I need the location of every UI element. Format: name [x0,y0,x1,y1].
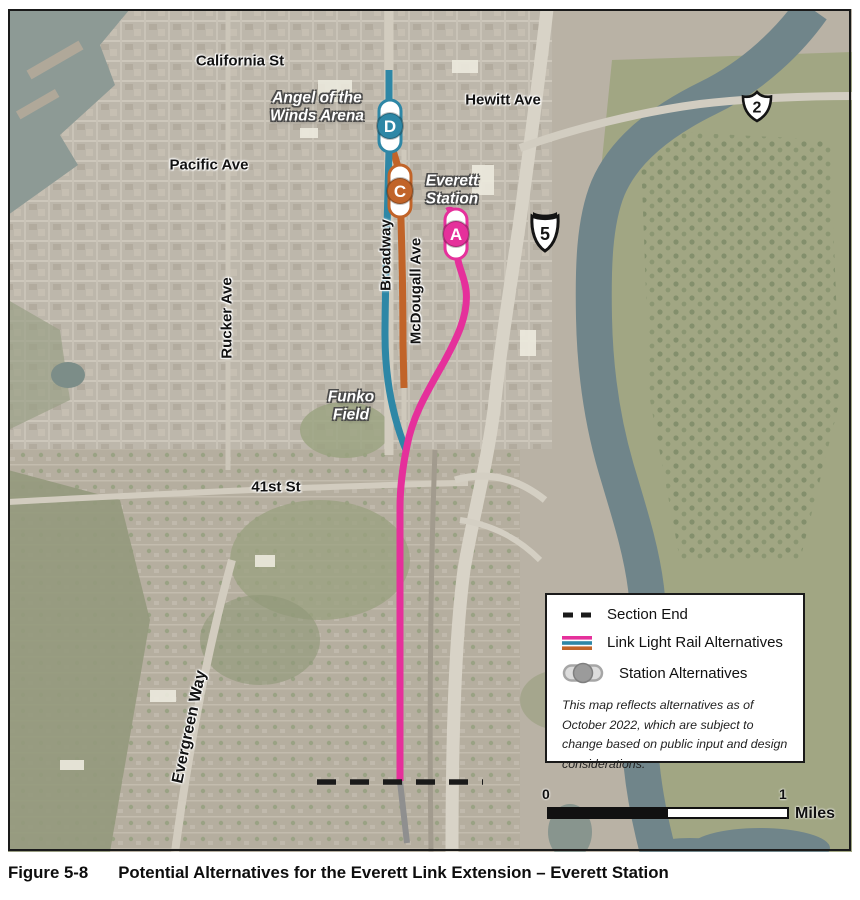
place-label-everett-station: Everett Station [426,173,479,210]
legend-note: This map reflects alternatives as of Oct… [562,696,791,774]
street-label-pacific-ave: Pacific Ave [170,157,249,174]
place-label-angel-of-the-winds-arena: Angel of the Winds Arena [270,90,364,127]
figure-page: D C A 2 5 California St Hewitt Ave Pacif… [0,0,860,900]
station-alternatives-swatch-icon [562,662,604,684]
everett-station-label-line1: Everett [426,173,479,191]
street-label-broadway: Broadway [378,219,395,291]
figure-title: Potential Alternatives for the Everett L… [118,863,669,883]
street-label-california-st: California St [196,53,284,70]
funko-field-label-line2: Field [328,407,375,425]
scale-one-label: 1 [779,786,787,802]
svg-text:5: 5 [540,224,550,244]
funko-field-label-line1: Funko [328,389,375,407]
street-label-rucker-ave: Rucker Ave [219,277,236,358]
station-marker-c: C [387,165,413,217]
legend-item-link-light-rail-alternatives: Link Light Rail Alternatives [562,634,791,651]
street-label-mcdougall-ave: McDougall Ave [408,238,425,344]
pond [51,362,85,388]
station-letter-d: D [384,117,396,136]
svg-text:2: 2 [753,100,762,117]
scale-zero-label: 0 [542,786,550,802]
legend-item-station-alternatives: Station Alternatives [562,662,791,684]
station-letter-a: A [450,225,462,244]
station-marker-a: A [443,209,469,259]
everett-station-label-line2: Station [426,191,479,209]
place-label-funko-field: Funko Field [328,389,375,426]
street-label-hewitt-ave: Hewitt Ave [465,92,541,109]
section-end-swatch-icon [562,611,592,619]
legend-box: Section End Link Light Rail Alternatives… [545,593,805,763]
figure-caption: Figure 5-8 Potential Alternatives for th… [8,863,852,883]
scale-unit-label: Miles [795,805,835,823]
street-label-41st-st: 41st St [251,479,300,496]
station-marker-d: D [377,100,403,152]
figure-number: Figure 5-8 [8,863,88,883]
legend-item-section-end: Section End [562,606,791,623]
legend-label-section-end: Section End [607,606,688,623]
arena-label-line2: Winds Arena [270,108,364,126]
arena-label-line1: Angel of the [270,90,364,108]
station-letter-c: C [394,182,406,201]
rail-alternatives-swatch-icon [562,636,592,650]
scale-bar [547,807,789,819]
legend-label-rail-alternatives: Link Light Rail Alternatives [607,634,783,651]
legend-label-station-alternatives: Station Alternatives [619,665,747,682]
